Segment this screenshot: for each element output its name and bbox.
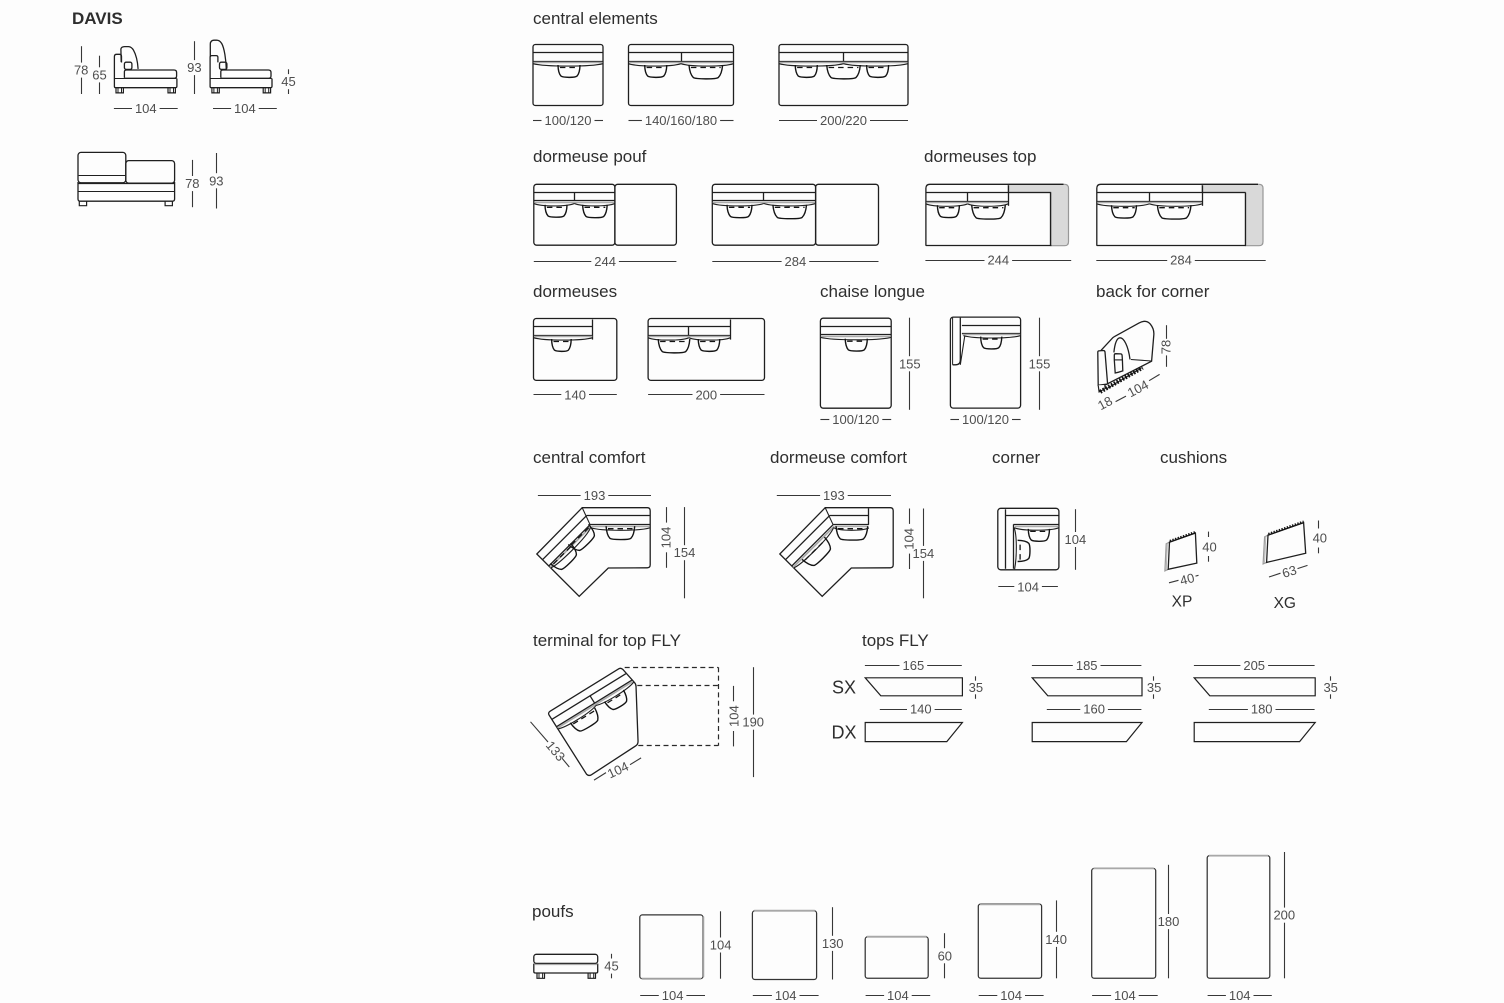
svg-text:SX: SX [832, 678, 856, 698]
svg-text:central comfort: central comfort [533, 448, 646, 467]
svg-text:104: 104 [135, 101, 157, 116]
svg-text:284: 284 [1170, 253, 1192, 268]
svg-text:104: 104 [775, 988, 797, 1003]
svg-text:104: 104 [662, 988, 684, 1003]
svg-text:104: 104 [1000, 988, 1022, 1003]
svg-text:154: 154 [674, 545, 696, 560]
svg-text:104: 104 [710, 938, 732, 953]
svg-text:140: 140 [564, 387, 586, 402]
svg-text:45: 45 [281, 74, 295, 89]
svg-text:poufs: poufs [532, 902, 574, 921]
svg-text:35: 35 [1147, 680, 1161, 695]
svg-text:tops FLY: tops FLY [862, 631, 929, 650]
svg-text:corner: corner [992, 448, 1041, 467]
svg-text:100/120: 100/120 [962, 412, 1009, 427]
svg-text:193: 193 [584, 488, 606, 503]
svg-text:140: 140 [910, 702, 932, 717]
svg-text:78: 78 [1159, 340, 1174, 354]
svg-text:140/160/180: 140/160/180 [645, 113, 717, 128]
svg-text:190: 190 [742, 715, 764, 730]
svg-text:terminal for top FLY: terminal for top FLY [533, 631, 681, 650]
svg-text:104: 104 [726, 705, 741, 727]
svg-text:165: 165 [903, 658, 925, 673]
svg-text:93: 93 [187, 60, 201, 75]
svg-text:200: 200 [1273, 908, 1295, 923]
svg-text:chaise longue: chaise longue [820, 282, 925, 301]
svg-text:dormeuses top: dormeuses top [924, 147, 1036, 166]
svg-text:180: 180 [1158, 914, 1180, 929]
svg-text:104: 104 [1114, 988, 1136, 1003]
svg-text:104: 104 [887, 988, 909, 1003]
svg-text:155: 155 [899, 356, 921, 371]
svg-text:104: 104 [1017, 579, 1039, 594]
svg-text:DAVIS: DAVIS [72, 9, 123, 28]
svg-text:154: 154 [913, 546, 935, 561]
svg-text:35: 35 [969, 680, 983, 695]
svg-text:45: 45 [604, 959, 618, 974]
svg-text:140: 140 [1045, 932, 1067, 947]
svg-text:284: 284 [785, 254, 807, 269]
svg-text:205: 205 [1243, 658, 1265, 673]
svg-text:60: 60 [938, 948, 952, 963]
svg-text:100/120: 100/120 [832, 412, 879, 427]
svg-text:78: 78 [74, 63, 88, 78]
svg-text:185: 185 [1076, 658, 1098, 673]
svg-text:104: 104 [1065, 532, 1087, 547]
svg-text:back for corner: back for corner [1096, 282, 1210, 301]
svg-text:35: 35 [1323, 680, 1337, 695]
svg-text:dormeuses: dormeuses [533, 282, 617, 301]
svg-text:160: 160 [1083, 702, 1105, 717]
svg-text:cushions: cushions [1160, 448, 1227, 467]
svg-text:XG: XG [1274, 595, 1296, 612]
svg-text:244: 244 [987, 253, 1009, 268]
svg-text:78: 78 [185, 176, 199, 191]
svg-text:93: 93 [209, 173, 223, 188]
svg-text:40: 40 [1313, 531, 1327, 546]
svg-text:central elements: central elements [533, 9, 658, 28]
svg-text:dormeuse comfort: dormeuse comfort [770, 448, 907, 467]
svg-text:65: 65 [92, 67, 106, 82]
svg-text:244: 244 [594, 254, 616, 269]
svg-text:104: 104 [234, 101, 256, 116]
svg-text:104: 104 [659, 527, 674, 549]
svg-text:200/220: 200/220 [820, 113, 867, 128]
svg-text:DX: DX [831, 722, 856, 742]
svg-text:130: 130 [822, 936, 844, 951]
svg-text:dormeuse pouf: dormeuse pouf [533, 147, 647, 166]
svg-text:193: 193 [823, 488, 845, 503]
svg-text:180: 180 [1251, 702, 1273, 717]
svg-text:104: 104 [1229, 988, 1251, 1003]
svg-text:40: 40 [1202, 540, 1216, 555]
svg-text:100/120: 100/120 [545, 113, 592, 128]
svg-text:XP: XP [1172, 594, 1193, 611]
svg-text:200: 200 [695, 387, 717, 402]
svg-text:155: 155 [1029, 356, 1051, 371]
